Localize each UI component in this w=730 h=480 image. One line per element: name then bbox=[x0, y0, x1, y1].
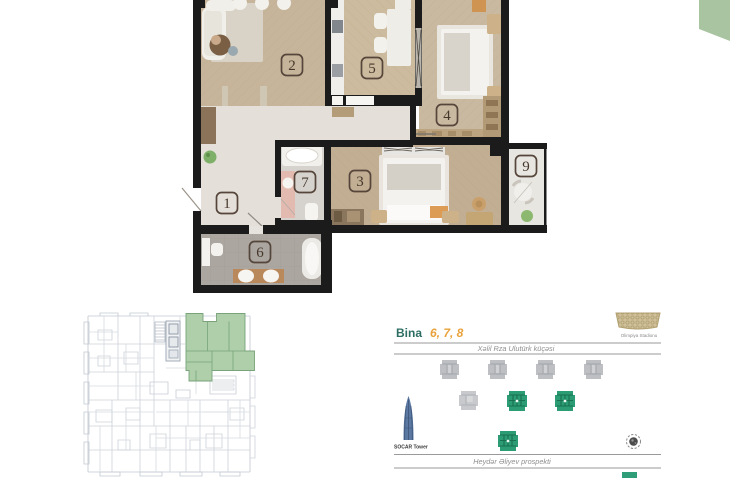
svg-text:7: 7 bbox=[301, 175, 309, 191]
svg-text:Xəlil Rza Ulutürk küçəsi: Xəlil Rza Ulutürk küçəsi bbox=[477, 344, 555, 353]
svg-text:4: 4 bbox=[443, 108, 451, 124]
svg-text:1: 1 bbox=[223, 196, 231, 212]
svg-text:6: 6 bbox=[256, 245, 264, 261]
svg-text:2: 2 bbox=[288, 58, 296, 74]
svg-text:SOCAR Tower: SOCAR Tower bbox=[394, 445, 428, 451]
svg-text:Heydər Əliyev prospekti: Heydər Əliyev prospekti bbox=[473, 457, 551, 466]
svg-text:Olimpiya Stadionu: Olimpiya Stadionu bbox=[621, 333, 658, 338]
svg-text:3: 3 bbox=[356, 174, 364, 190]
svg-text:5: 5 bbox=[368, 61, 376, 77]
svg-text:9: 9 bbox=[522, 159, 530, 175]
svg-text:Bina: Bina bbox=[396, 326, 422, 340]
svg-text:6, 7, 8: 6, 7, 8 bbox=[430, 326, 464, 340]
